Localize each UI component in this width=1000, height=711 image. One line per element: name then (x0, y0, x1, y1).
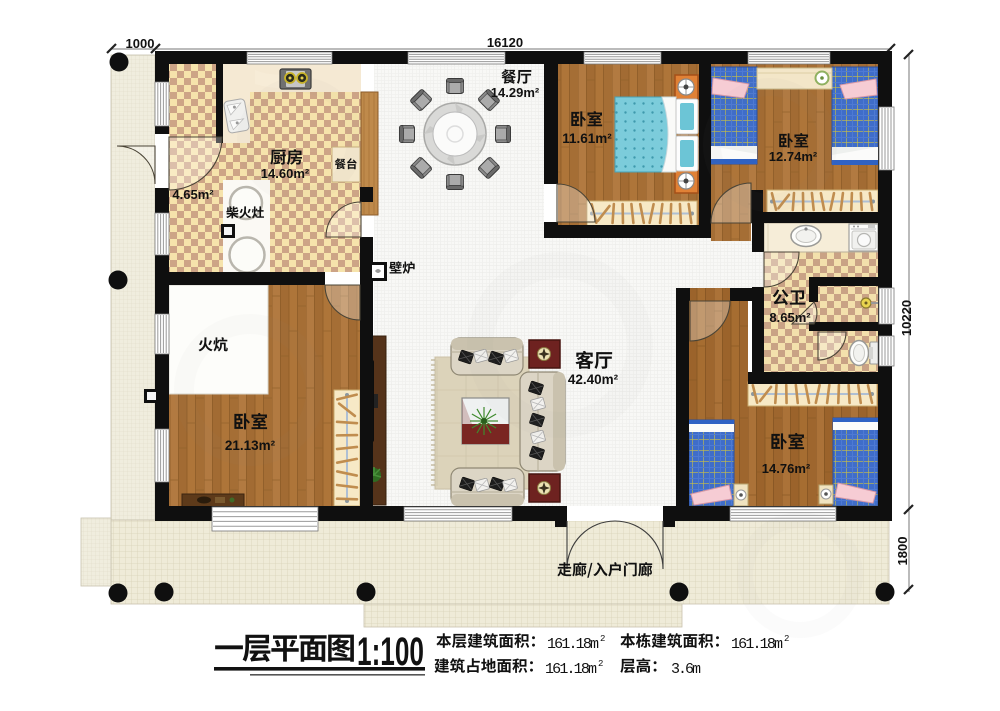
svg-text:11.61m²: 11.61m² (562, 131, 612, 146)
svg-text:10220: 10220 (899, 300, 914, 336)
svg-text:161.18m: 161.18m (545, 661, 597, 678)
svg-text:14.60m²: 14.60m² (261, 166, 310, 181)
svg-text:4.65m²: 4.65m² (172, 187, 214, 202)
svg-text:2: 2 (784, 634, 789, 644)
svg-text:12.74m²: 12.74m² (769, 149, 818, 164)
svg-text:16120: 16120 (487, 35, 523, 50)
svg-text:1800: 1800 (895, 537, 910, 566)
svg-text:14.29m²: 14.29m² (491, 85, 540, 100)
svg-text:161.18m: 161.18m (547, 636, 599, 653)
svg-text:14.76m²: 14.76m² (762, 461, 811, 476)
svg-text:3.6m: 3.6m (671, 661, 701, 678)
svg-text:1000: 1000 (126, 36, 155, 51)
svg-text:21.13m²: 21.13m² (225, 438, 276, 453)
svg-text:2: 2 (598, 659, 603, 669)
svg-text:42.40m²: 42.40m² (568, 372, 619, 387)
svg-text:161.18m: 161.18m (731, 636, 783, 653)
svg-text:2: 2 (600, 634, 605, 644)
svg-text:8.65m²: 8.65m² (769, 310, 811, 325)
